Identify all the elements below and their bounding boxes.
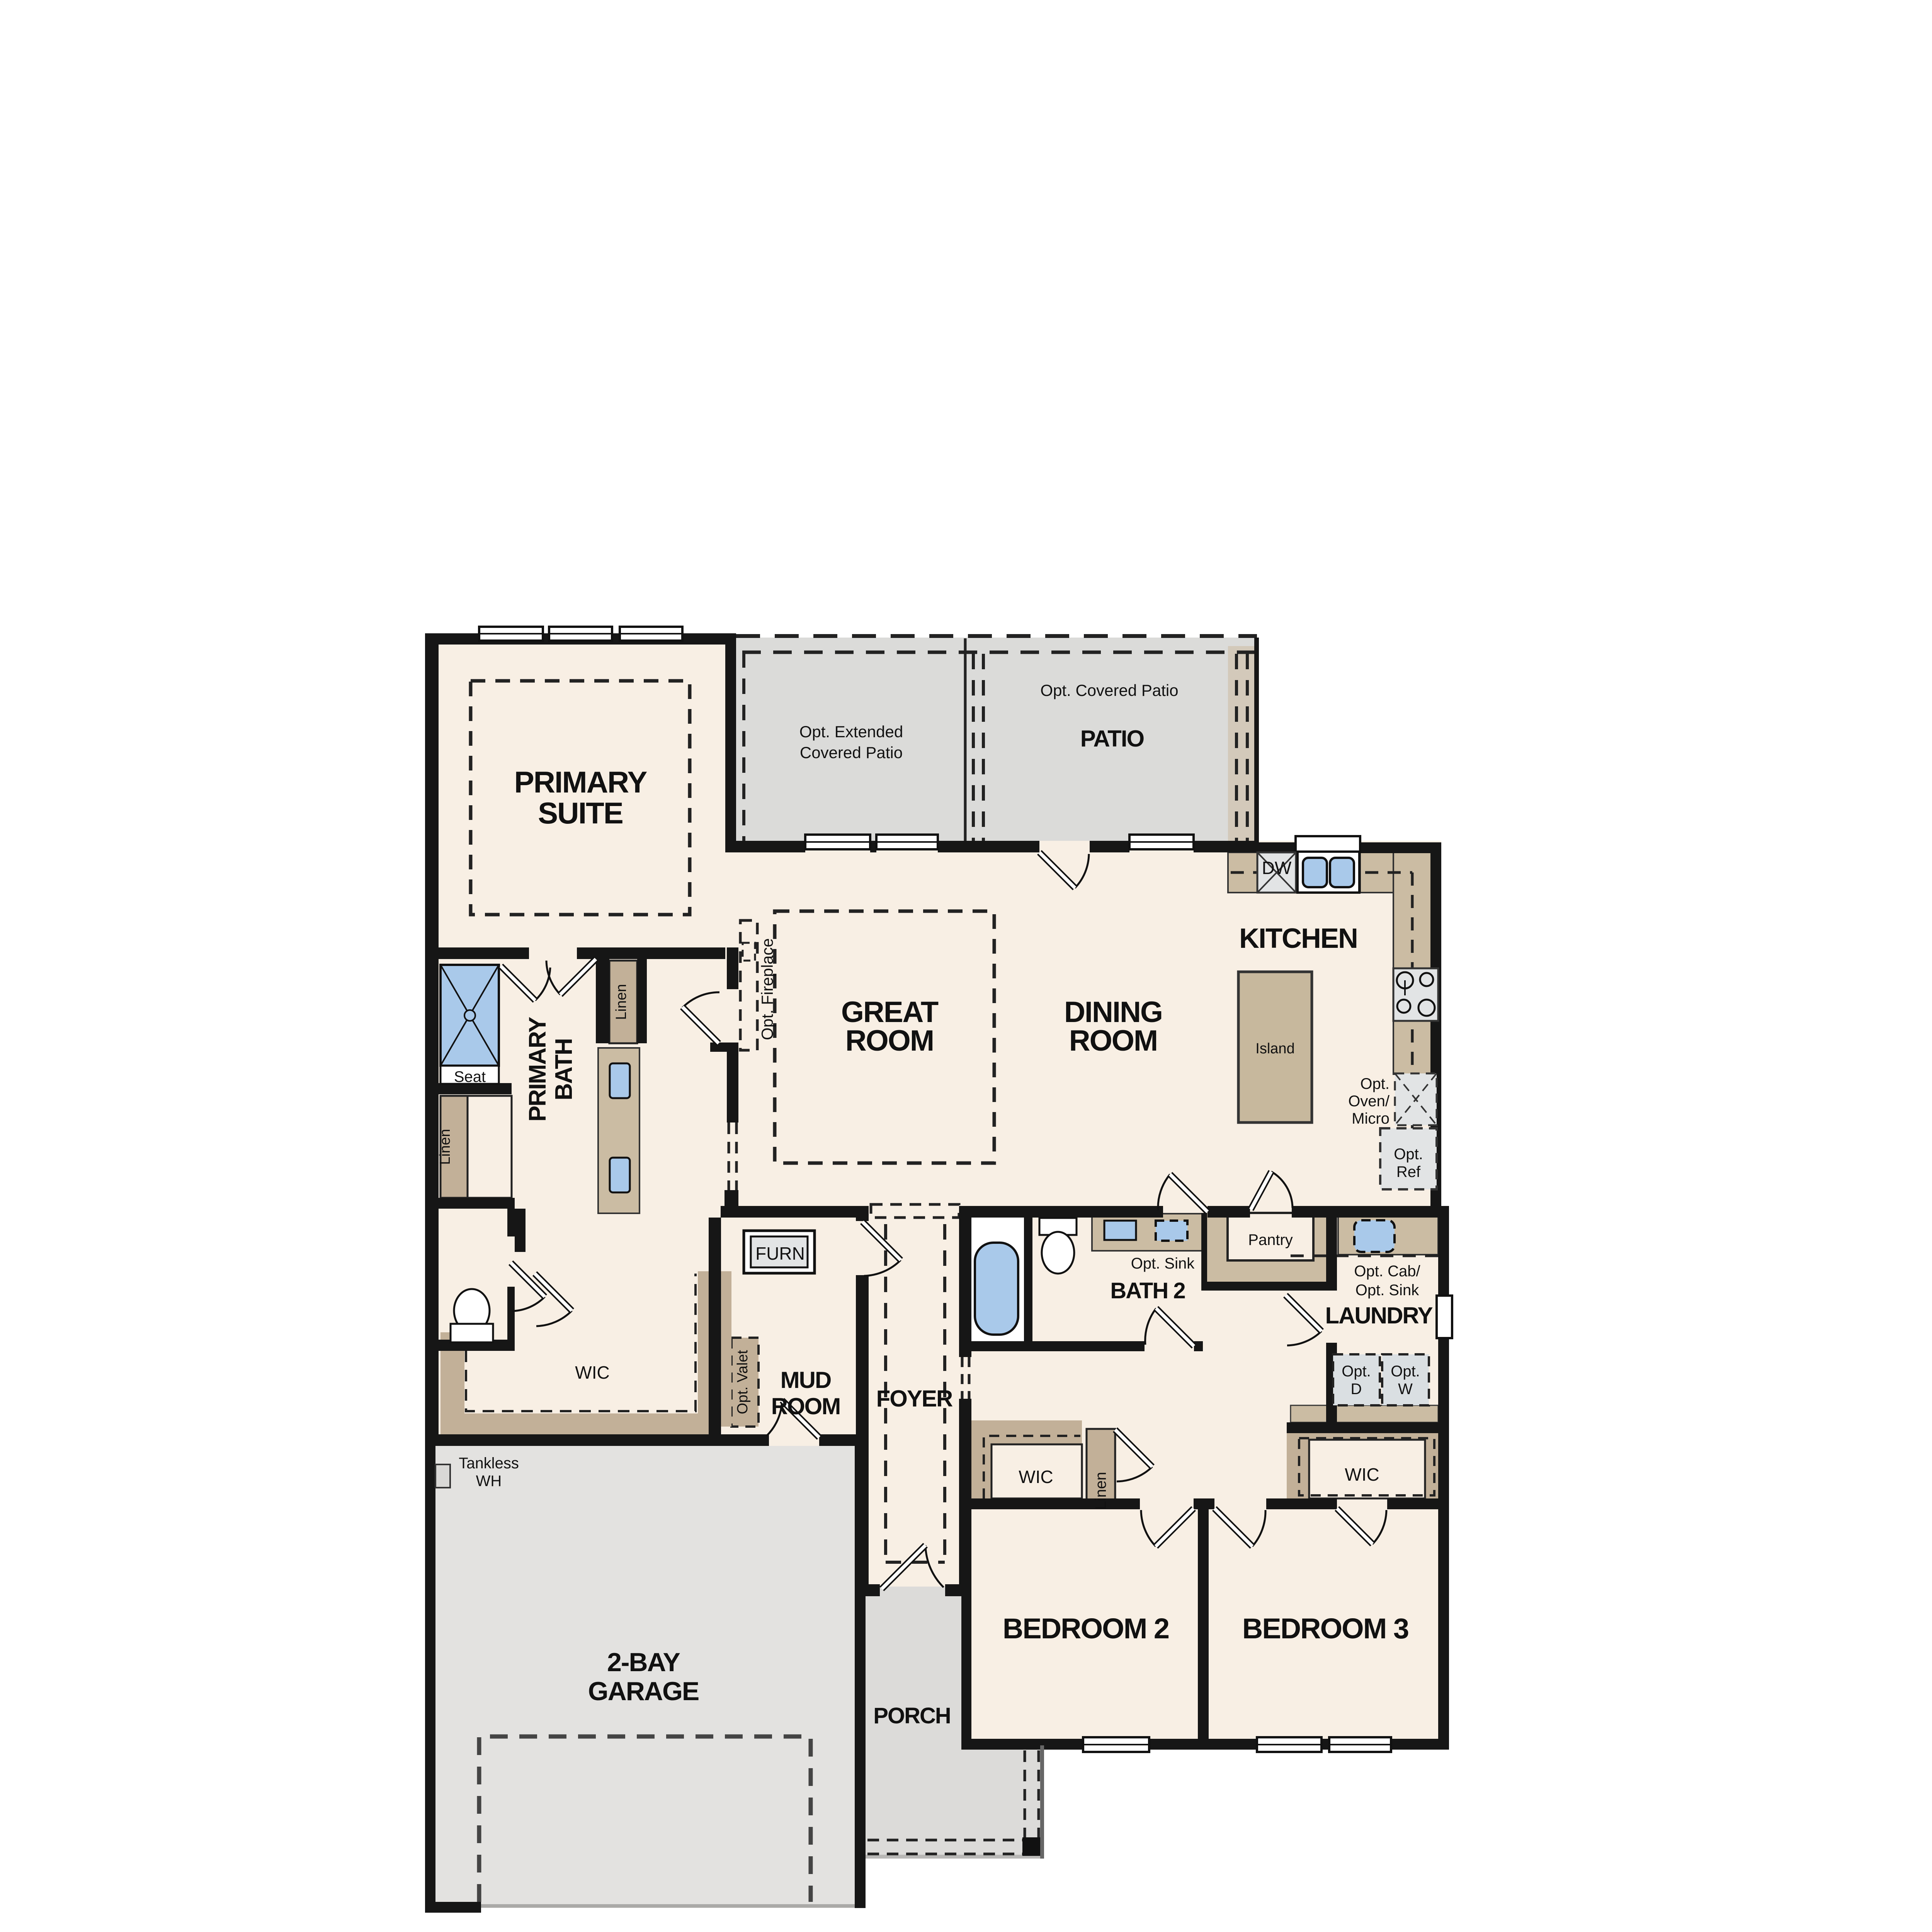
svg-text:WIC: WIC bbox=[1345, 1464, 1379, 1485]
svg-text:BEDROOM 2: BEDROOM 2 bbox=[1003, 1612, 1169, 1645]
svg-text:PATIO: PATIO bbox=[1080, 726, 1144, 752]
svg-text:Ref: Ref bbox=[1396, 1163, 1421, 1180]
svg-text:MUD: MUD bbox=[781, 1367, 831, 1393]
svg-text:ROOM: ROOM bbox=[771, 1393, 840, 1419]
svg-text:GREAT: GREAT bbox=[841, 996, 939, 1029]
svg-text:DW: DW bbox=[1262, 858, 1292, 878]
svg-text:FURN: FURN bbox=[755, 1243, 805, 1264]
svg-text:Seat: Seat bbox=[454, 1068, 486, 1085]
svg-text:ROOM: ROOM bbox=[1069, 1024, 1157, 1057]
svg-text:Opt. Extended: Opt. Extended bbox=[799, 723, 903, 741]
svg-text:SUITE: SUITE bbox=[538, 796, 623, 830]
svg-text:W: W bbox=[1398, 1381, 1413, 1398]
svg-text:Opt. Sink: Opt. Sink bbox=[1131, 1255, 1195, 1272]
svg-text:MAIN LEVEL: MAIN LEVEL bbox=[431, 1927, 611, 1932]
svg-text:Opt. Covered Patio: Opt. Covered Patio bbox=[1040, 681, 1178, 699]
svg-text:PORCH: PORCH bbox=[873, 1703, 950, 1728]
svg-text:BATH 2: BATH 2 bbox=[1110, 1278, 1185, 1303]
svg-text:PRIMARY: PRIMARY bbox=[514, 765, 647, 799]
svg-text:FOYER: FOYER bbox=[876, 1386, 953, 1412]
svg-text:Linen: Linen bbox=[613, 984, 629, 1020]
svg-text:Covered Patio: Covered Patio bbox=[800, 743, 903, 762]
svg-text:Micro: Micro bbox=[1352, 1110, 1389, 1127]
svg-text:Opt. Sink: Opt. Sink bbox=[1355, 1282, 1420, 1299]
svg-text:WIC: WIC bbox=[575, 1362, 609, 1383]
svg-text:Opt.: Opt. bbox=[1391, 1363, 1420, 1380]
svg-text:Linen: Linen bbox=[1092, 1472, 1109, 1510]
svg-text:BATH: BATH bbox=[551, 1039, 577, 1100]
svg-text:Opt.: Opt. bbox=[1342, 1363, 1371, 1380]
svg-text:WH: WH bbox=[476, 1473, 502, 1490]
svg-text:Opt.: Opt. bbox=[1394, 1146, 1423, 1163]
svg-text:GARAGE: GARAGE bbox=[588, 1677, 699, 1706]
svg-text:DINING: DINING bbox=[1064, 996, 1162, 1029]
svg-text:Island: Island bbox=[1255, 1041, 1294, 1057]
svg-text:Opt. Valet: Opt. Valet bbox=[735, 1350, 751, 1414]
svg-text:Opt.: Opt. bbox=[1360, 1075, 1389, 1092]
svg-text:PRIMARY: PRIMARY bbox=[524, 1017, 551, 1122]
svg-text:LAUNDRY: LAUNDRY bbox=[1325, 1303, 1433, 1328]
svg-text:WIC: WIC bbox=[1019, 1467, 1053, 1487]
svg-text:KITCHEN: KITCHEN bbox=[1239, 923, 1357, 954]
svg-text:2-BAY: 2-BAY bbox=[607, 1648, 680, 1677]
svg-text:Opt. Cab/: Opt. Cab/ bbox=[1354, 1263, 1420, 1280]
svg-text:Oven/: Oven/ bbox=[1348, 1093, 1390, 1110]
svg-text:Opt. Fireplace: Opt. Fireplace bbox=[758, 938, 776, 1040]
svg-text:Pantry: Pantry bbox=[1248, 1231, 1293, 1248]
svg-text:ROOM: ROOM bbox=[845, 1024, 934, 1057]
svg-text:Tankless: Tankless bbox=[459, 1455, 519, 1472]
svg-text:D: D bbox=[1351, 1381, 1362, 1398]
svg-text:BEDROOM 3: BEDROOM 3 bbox=[1242, 1612, 1408, 1645]
svg-text:Linen: Linen bbox=[437, 1129, 453, 1165]
